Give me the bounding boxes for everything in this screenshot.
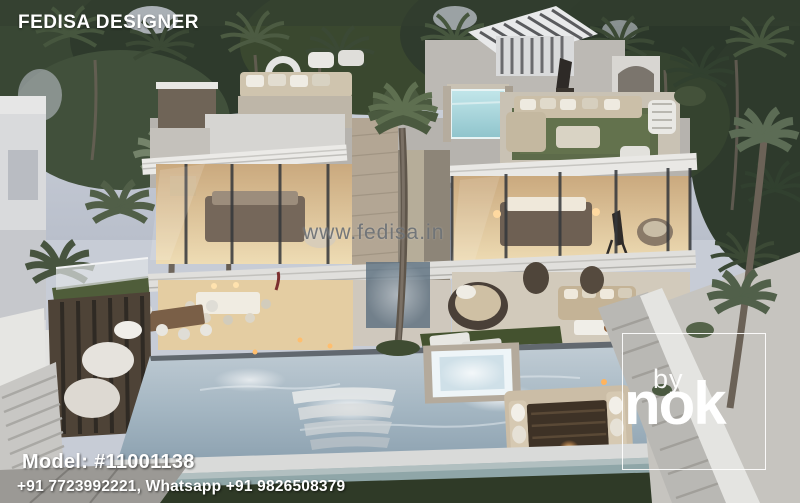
contact-phone-text: +91 7723992221, Whatsapp +91 9826508379 bbox=[17, 478, 345, 496]
bynok-logo-nok-text: nok bbox=[624, 374, 725, 434]
brand-text: FEDISA DESIGNER bbox=[18, 12, 199, 34]
bynok-logo: by nok bbox=[622, 333, 766, 470]
villa-render-image: FEDISA DESIGNER www.fedisa.in Model: #11… bbox=[0, 0, 800, 503]
watermark-text: www.fedisa.in bbox=[303, 221, 444, 245]
lounge-chair bbox=[82, 342, 134, 378]
round-daybed bbox=[448, 282, 508, 330]
rooftop-sofa-left bbox=[240, 72, 352, 98]
lounge-chair bbox=[64, 378, 120, 418]
rooftop-arch bbox=[612, 56, 660, 94]
model-number-text: Model: #11001138 bbox=[22, 451, 195, 474]
